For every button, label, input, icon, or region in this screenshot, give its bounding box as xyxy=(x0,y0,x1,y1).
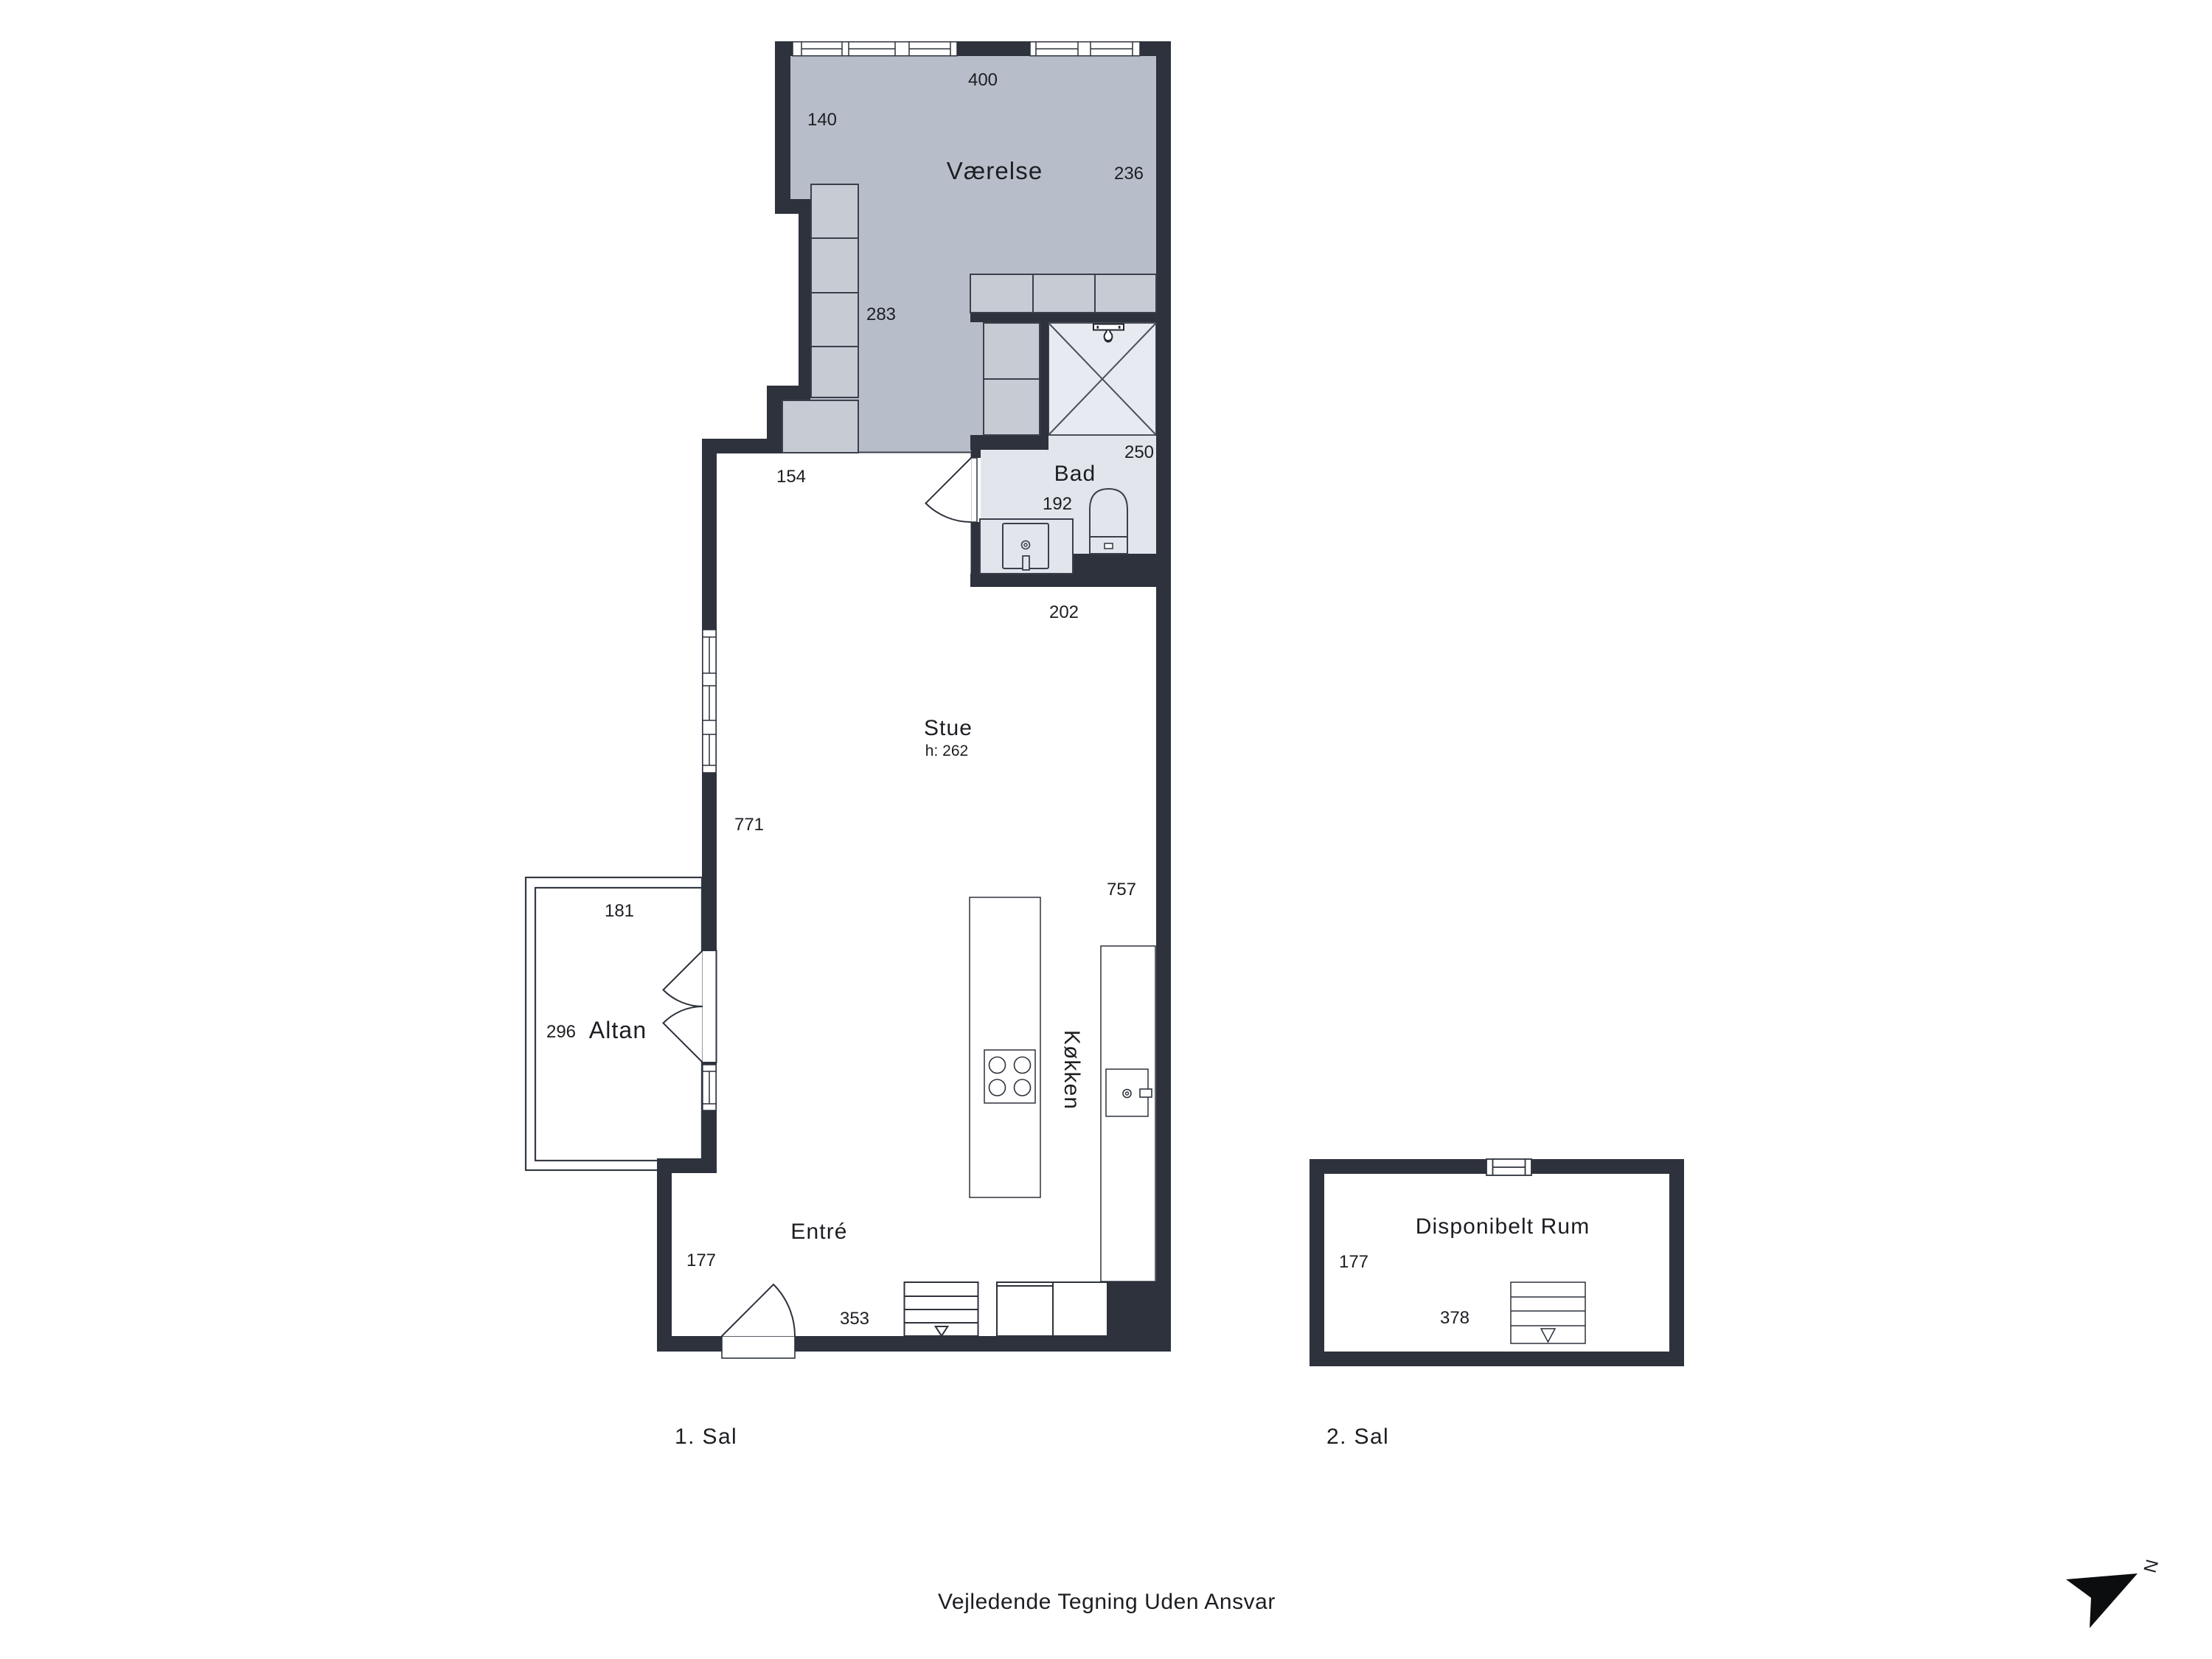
svg-text:Altan: Altan xyxy=(589,1017,647,1043)
svg-text:353: 353 xyxy=(840,1309,869,1329)
svg-text:Vejledende Tegning Uden Ansvar: Vejledende Tegning Uden Ansvar xyxy=(938,1590,1276,1614)
svg-text:154: 154 xyxy=(776,467,806,487)
svg-text:Bad: Bad xyxy=(1054,462,1096,486)
svg-text:h: 262: h: 262 xyxy=(925,742,968,759)
svg-text:2. Sal: 2. Sal xyxy=(1326,1425,1389,1449)
svg-text:Værelse: Værelse xyxy=(947,157,1043,184)
svg-text:Køkken: Køkken xyxy=(1060,1030,1084,1110)
svg-text:192: 192 xyxy=(1043,494,1072,514)
svg-text:250: 250 xyxy=(1124,442,1154,462)
svg-text:Stue: Stue xyxy=(924,716,973,740)
svg-text:177: 177 xyxy=(1339,1252,1368,1272)
svg-text:177: 177 xyxy=(686,1251,716,1270)
svg-text:140: 140 xyxy=(807,110,837,130)
svg-text:181: 181 xyxy=(605,901,634,921)
svg-text:283: 283 xyxy=(866,305,896,324)
svg-text:Entré: Entré xyxy=(790,1220,847,1244)
svg-text:1. Sal: 1. Sal xyxy=(675,1425,737,1449)
svg-text:296: 296 xyxy=(546,1022,576,1042)
svg-text:202: 202 xyxy=(1049,602,1079,622)
svg-text:378: 378 xyxy=(1440,1308,1470,1328)
svg-text:771: 771 xyxy=(734,815,764,835)
svg-text:400: 400 xyxy=(968,70,998,90)
svg-text:757: 757 xyxy=(1107,880,1136,900)
svg-text:Disponibelt Rum: Disponibelt Rum xyxy=(1416,1214,1590,1239)
svg-text:236: 236 xyxy=(1114,164,1144,184)
